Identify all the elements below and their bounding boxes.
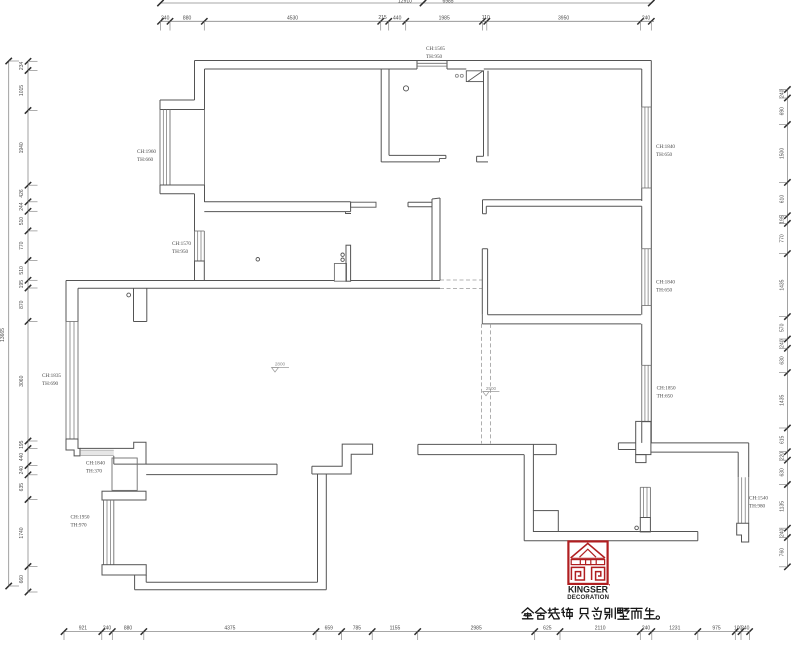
svg-text:TH:650: TH:650 (657, 394, 674, 400)
svg-text:1135: 1135 (780, 501, 786, 512)
svg-text:240: 240 (642, 16, 651, 22)
svg-text:240: 240 (19, 466, 25, 475)
svg-text:195: 195 (19, 280, 25, 289)
svg-text:240: 240 (780, 339, 786, 348)
svg-text:220: 220 (780, 452, 786, 461)
svg-text:1740: 1740 (19, 527, 25, 538)
svg-text:240: 240 (741, 626, 750, 632)
svg-text:240: 240 (642, 626, 651, 632)
svg-text:615: 615 (780, 435, 786, 444)
svg-text:TH:650: TH:650 (656, 152, 673, 158)
svg-text:1155: 1155 (390, 626, 401, 632)
svg-text:440: 440 (393, 16, 402, 22)
svg-text:CH:1960: CH:1960 (137, 149, 156, 155)
svg-text:785: 785 (353, 626, 362, 632)
svg-text:660: 660 (19, 575, 25, 584)
svg-text:610: 610 (780, 195, 786, 204)
svg-text:4375: 4375 (224, 626, 235, 632)
svg-text:2800: 2800 (275, 362, 286, 367)
svg-text:TH:950: TH:950 (172, 249, 189, 255)
svg-text:TH:660: TH:660 (137, 157, 154, 163)
svg-text:690: 690 (780, 107, 786, 116)
svg-text:3950: 3950 (558, 16, 569, 22)
svg-text:1435: 1435 (780, 279, 786, 290)
svg-text:195: 195 (19, 440, 25, 449)
svg-text:6985: 6985 (442, 0, 453, 5)
svg-text:921: 921 (79, 626, 88, 632)
svg-text:CH:1950: CH:1950 (71, 515, 90, 521)
svg-text:426: 426 (19, 189, 25, 198)
svg-text:215: 215 (378, 15, 387, 21)
svg-text:TH:370: TH:370 (86, 469, 103, 475)
svg-text:CH:1570: CH:1570 (172, 241, 191, 247)
svg-text:1435: 1435 (780, 395, 786, 406)
svg-text:4530: 4530 (287, 16, 298, 22)
svg-text:CH:1840: CH:1840 (656, 280, 675, 286)
svg-text:630: 630 (780, 356, 786, 365)
svg-text:12910: 12910 (398, 0, 412, 5)
svg-text:CH:1835: CH:1835 (42, 373, 61, 379)
svg-text:625: 625 (543, 626, 552, 632)
svg-text:880: 880 (183, 16, 192, 22)
svg-text:DECORATION: DECORATION (567, 595, 609, 601)
svg-text:CH:1840: CH:1840 (656, 144, 675, 150)
svg-text:195: 195 (780, 215, 786, 224)
svg-text:CH:1840: CH:1840 (86, 461, 105, 467)
svg-text:1500: 1500 (780, 148, 786, 159)
svg-text:1231: 1231 (669, 626, 680, 632)
svg-text:244: 244 (19, 202, 25, 211)
svg-text:570: 570 (780, 323, 786, 332)
svg-text:TH:950: TH:950 (426, 54, 443, 60)
svg-text:3060: 3060 (19, 375, 25, 386)
svg-text:1985: 1985 (439, 16, 450, 22)
svg-text:975: 975 (712, 626, 721, 632)
svg-text:110: 110 (482, 15, 490, 21)
svg-text:1015: 1015 (19, 85, 25, 96)
svg-text:2985: 2985 (471, 626, 482, 632)
svg-text:TH:980: TH:980 (749, 504, 766, 510)
svg-text:760: 760 (780, 548, 786, 557)
svg-text:240: 240 (103, 626, 112, 632)
svg-text:880: 880 (124, 626, 133, 632)
svg-text:440: 440 (19, 453, 25, 462)
svg-text:CH:1565: CH:1565 (426, 46, 445, 52)
svg-text:630: 630 (780, 468, 786, 477)
svg-text:TH:970: TH:970 (71, 523, 88, 529)
svg-text:CH:1540: CH:1540 (749, 496, 768, 502)
svg-text:510: 510 (19, 266, 25, 275)
svg-text:240: 240 (161, 16, 170, 22)
svg-text:240: 240 (780, 89, 786, 98)
svg-text:240: 240 (780, 528, 786, 537)
svg-text:KINGSER: KINGSER (568, 585, 609, 595)
svg-text:635: 635 (19, 483, 25, 492)
svg-text:2110: 2110 (595, 626, 606, 632)
svg-text:TH:650: TH:650 (656, 288, 673, 294)
svg-text:510: 510 (19, 217, 25, 226)
svg-text:870: 870 (19, 300, 25, 309)
svg-text:770: 770 (19, 241, 25, 250)
svg-text:659: 659 (325, 626, 334, 632)
svg-text:13665: 13665 (0, 328, 6, 342)
svg-text:234: 234 (19, 62, 25, 71)
svg-text:CH:1850: CH:1850 (657, 386, 676, 392)
svg-text:1940: 1940 (19, 142, 25, 153)
svg-text:2500: 2500 (486, 386, 497, 391)
svg-text:TH:690: TH:690 (42, 381, 59, 387)
svg-text:770: 770 (780, 234, 786, 243)
